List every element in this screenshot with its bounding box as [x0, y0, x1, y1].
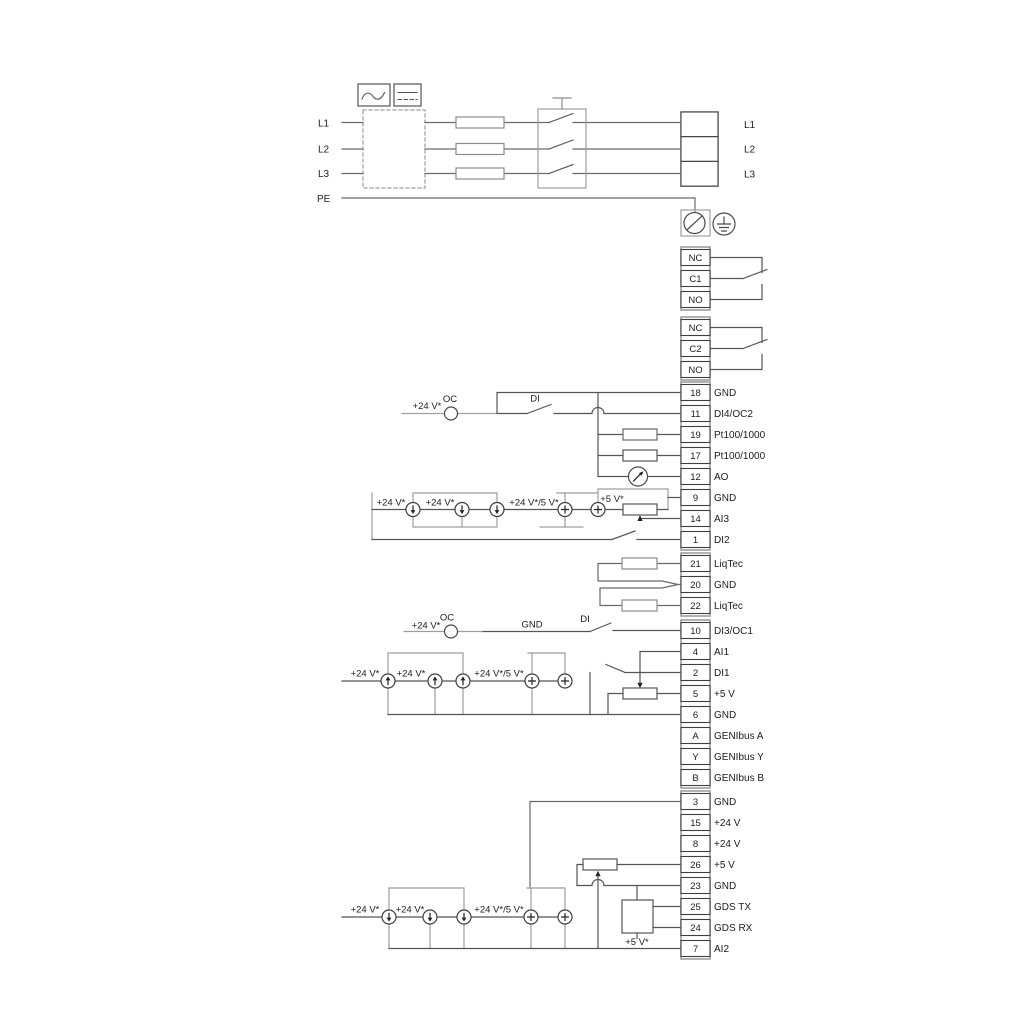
di3-di-label: DI — [580, 614, 590, 625]
terminal-number: 10 — [690, 626, 701, 637]
ai2-pot-wiper-arrow — [595, 871, 600, 877]
terminal-label: Pt100/1000 — [714, 430, 766, 441]
earth-ground-bars — [718, 217, 731, 231]
terminal-label: GENIbus B — [714, 773, 764, 784]
di4-oc-label: OC — [443, 394, 457, 405]
terminal-label: +5 V — [714, 860, 735, 871]
terminal-label: +5 V — [714, 689, 735, 700]
current-source-icon — [423, 910, 437, 924]
voltage-source-icon — [558, 674, 572, 688]
terminal-label: GND — [714, 580, 736, 591]
switch-blades — [549, 114, 573, 174]
terminal-number: 24 — [690, 923, 701, 934]
terminal-number: 14 — [690, 514, 701, 525]
terminal-number: 19 — [690, 430, 701, 441]
terminal-number: 8 — [693, 839, 698, 850]
pt100-resistor-17 — [623, 450, 657, 461]
terminal-number: 9 — [693, 493, 698, 504]
gds-sensor-box — [622, 900, 653, 933]
fuse-l1 — [456, 117, 504, 128]
current-source-icon — [428, 674, 442, 688]
di2-switch-wire — [372, 531, 681, 540]
terminal-label: DI2 — [714, 535, 730, 546]
ai2-sensor-group — [342, 802, 681, 949]
relay1-contact — [710, 258, 767, 300]
ai1-supply1-label: +24 V* — [351, 669, 380, 680]
di3-oc-label: OC — [440, 613, 454, 624]
relay-terminal-name: C1 — [689, 274, 701, 285]
pe-screw-slash — [688, 217, 702, 230]
terminal-number: 21 — [690, 559, 701, 570]
strip-main: 18GND11DI4/OC219Pt100/100017Pt100/100012… — [681, 382, 766, 550]
terminal-label: GDS TX — [714, 902, 751, 913]
terminal-number: 17 — [690, 451, 701, 462]
terminal-label: AI3 — [714, 514, 729, 525]
wiring-diagram-page: L1L2L3NCC1NONCC2NO18GND11DI4/OC219Pt100/… — [0, 0, 1024, 1024]
ai2-supply1-label: +24 V* — [351, 905, 380, 916]
relay2-contact — [710, 328, 767, 370]
terminal-number: 4 — [693, 647, 698, 658]
voltage-source-icon — [524, 910, 538, 924]
terminal-label: AI1 — [714, 647, 729, 658]
ai3-5v-label: +5 V* — [600, 494, 624, 505]
ai3-supply1-label: +24 V* — [377, 498, 406, 509]
relay-terminal-name: C2 — [689, 344, 701, 355]
dc-symbol-box — [394, 84, 421, 106]
voltage-source-icon — [558, 503, 572, 517]
terminal-number: 1 — [693, 535, 698, 546]
terminal-number: 11 — [691, 409, 701, 420]
relay-terminal-name: NC — [689, 323, 703, 334]
terminal-number: 25 — [690, 902, 701, 913]
ai3-potentiometer — [623, 504, 657, 515]
voltage-source-icon — [525, 674, 539, 688]
terminal-number: 22 — [690, 601, 701, 612]
phase-label-pe: PE — [317, 194, 331, 205]
liqtec-sensor-22 — [622, 600, 657, 611]
di4-di-label: DI — [530, 394, 540, 405]
power-section — [342, 84, 735, 236]
terminal-label: GENIbus A — [714, 731, 764, 742]
ai2-supply3-label: +24 V*/5 V* — [474, 905, 524, 916]
ai1-wiper-wire — [640, 652, 681, 685]
power-wires — [342, 123, 695, 212]
terminal-label: DI3/OC1 — [714, 626, 753, 637]
terminal-label: AI2 — [714, 944, 729, 955]
fuses — [456, 117, 504, 179]
strip-bottom: 3GND15+24 V8+24 V26+5 V23GND25GDS TX24GD… — [681, 791, 753, 959]
terminal-number: 5 — [693, 689, 698, 700]
terminal-number: 20 — [690, 580, 701, 591]
current-source-icon — [455, 503, 469, 517]
terminal-label: AO — [714, 472, 729, 483]
current-source-icon — [490, 503, 504, 517]
relay2-block: NCC2NO — [681, 317, 710, 380]
terminal-label: DI1 — [714, 668, 730, 679]
terminal-label: GND — [714, 710, 736, 721]
ai3-supply2-label: +24 V* — [426, 498, 455, 509]
liqtec-loop-wires — [598, 564, 681, 606]
terminal-cell — [681, 112, 718, 137]
terminal-number: B — [692, 773, 698, 784]
phase-label-l3: L3 — [318, 169, 330, 180]
ai2-potentiometer — [583, 859, 617, 870]
fuse-l3 — [456, 168, 504, 179]
terminal-label: GENIbus Y — [714, 752, 764, 763]
ai1-supply3-label: +24 V*/5 V* — [474, 669, 524, 680]
voltage-source-icon — [558, 910, 572, 924]
switch-linkage — [553, 98, 571, 109]
terminal-label: GDS RX — [714, 923, 753, 934]
liqtec-sensor-21 — [622, 558, 657, 569]
terminal-number: A — [692, 731, 699, 742]
terminal-number: 15 — [690, 818, 701, 829]
pe-terminal-box — [681, 210, 710, 236]
terminal-number: 7 — [693, 944, 698, 955]
fuse-l2 — [456, 144, 504, 155]
terminal-label: DI4/OC2 — [714, 409, 753, 420]
pt100-resistor-19 — [623, 429, 657, 440]
terminal-number: 12 — [690, 472, 701, 483]
ai2-supply2-label: +24 V* — [396, 905, 425, 916]
power-output-block: L1L2L3 — [681, 112, 756, 186]
strip-liqtec: 21LiqTec20GND22LiqTec — [681, 553, 743, 616]
terminal-label: GND — [714, 493, 736, 504]
current-source-icon — [456, 674, 470, 688]
terminal-label: +24 V — [714, 839, 741, 850]
terminal-label: +24 V — [714, 818, 741, 829]
terminal-cell — [681, 161, 718, 186]
di4-supply-label: +24 V* — [413, 401, 442, 412]
relay-terminal-name: NC — [689, 253, 703, 264]
ai1-potentiometer — [623, 688, 657, 699]
current-source-icon — [381, 674, 395, 688]
terminal-label: GND — [714, 388, 736, 399]
ai1-supply2-label: +24 V* — [397, 669, 426, 680]
oc2-output-icon — [445, 407, 458, 420]
ai2-rails — [389, 888, 565, 949]
ai3-supply3-label: +24 V*/5 V* — [509, 498, 559, 509]
liqtec-wires — [598, 558, 681, 611]
terminal-label: LiqTec — [714, 559, 743, 570]
ac-wave-icon — [362, 93, 385, 100]
terminal-label: GND — [714, 881, 736, 892]
gds-5v-label: +5 V* — [625, 937, 649, 948]
oc1-output-icon — [445, 625, 458, 638]
terminal-number: 26 — [690, 860, 701, 871]
current-source-icon — [457, 910, 471, 924]
text-labels: L1 L2 L3 PE +24 V* OC DI +24 V* +24 V* +… — [317, 119, 649, 949]
relay-terminal-name: NO — [688, 295, 702, 306]
terminal-strips: L1L2L3NCC1NONCC2NO18GND11DI4/OC219Pt100/… — [381, 112, 766, 959]
phase-label-l1: L1 — [318, 119, 330, 130]
power-output-label: L3 — [744, 169, 756, 180]
terminal-number: 2 — [693, 668, 698, 679]
current-source-icon — [382, 910, 396, 924]
power-output-label: L2 — [744, 145, 756, 156]
di3-supply-label: +24 V* — [412, 621, 441, 632]
ac-symbol-box — [358, 84, 390, 106]
terminal-label: LiqTec — [714, 601, 743, 612]
di3-gnd-label: GND — [521, 620, 542, 631]
terminal-number: 23 — [690, 881, 701, 892]
terminal-number: 3 — [693, 797, 698, 808]
current-source-icon — [406, 503, 420, 517]
filter-dashed-box — [363, 110, 425, 188]
relay-terminal-name: NO — [688, 365, 702, 376]
relay-wires — [710, 258, 767, 370]
terminal-number: 18 — [690, 388, 701, 399]
gnd3-wire — [530, 802, 681, 889]
terminal-number: 6 — [693, 710, 698, 721]
phase-label-l2: L2 — [318, 145, 330, 156]
wiring-diagram: L1L2L3NCC1NONCC2NO18GND11DI4/OC219Pt100/… — [0, 0, 1024, 1024]
strip-mid: 10DI3/OC14AI12DI15+5 V6GNDAGENIbus AYGEN… — [681, 620, 764, 788]
terminal-number: Y — [692, 752, 699, 763]
terminal-cell — [681, 137, 718, 162]
terminal-label: Pt100/1000 — [714, 451, 766, 462]
gnd23-wire — [577, 886, 681, 901]
power-output-label: L1 — [744, 120, 756, 131]
terminal-label: GND — [714, 797, 736, 808]
io-main-wires — [402, 393, 681, 487]
relay1-block: NCC1NO — [681, 247, 710, 310]
